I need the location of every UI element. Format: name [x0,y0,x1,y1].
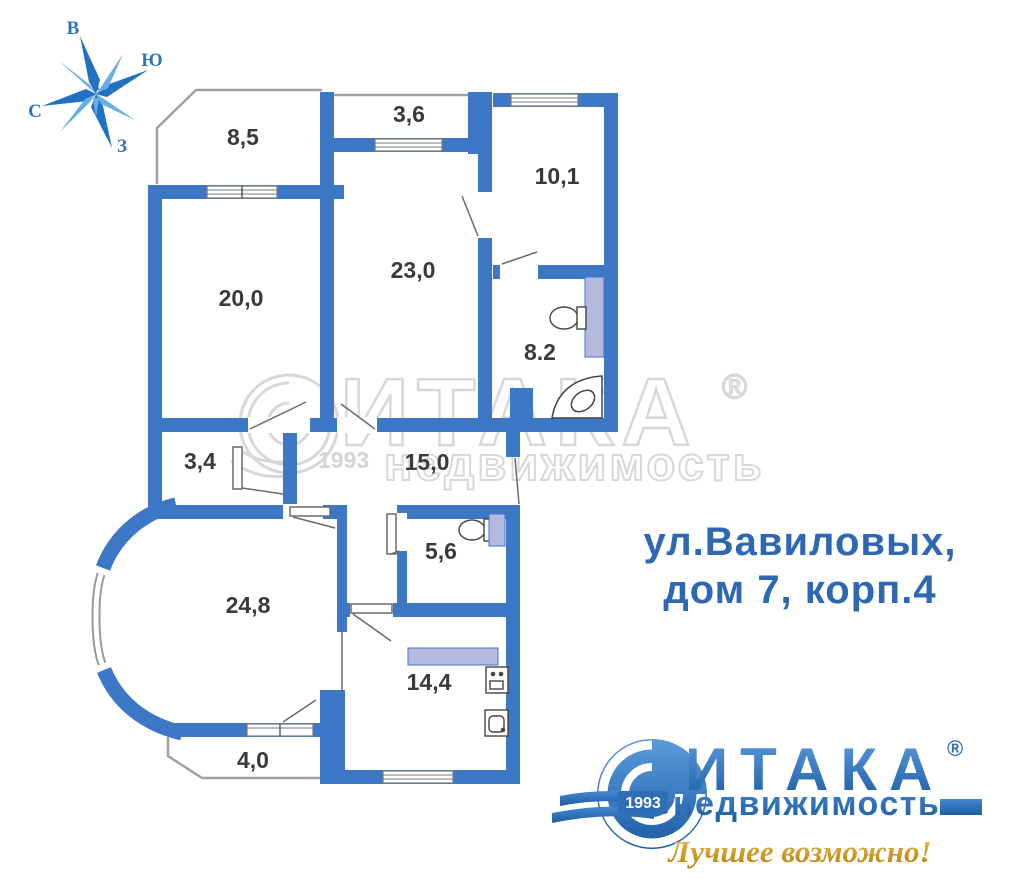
logo-tagline: Лучшее возможно! [666,834,931,869]
logo-subtitle: недвижимость [673,785,940,823]
logo-bar [940,799,982,815]
logo-year: 1993 [625,795,661,812]
floor-plan-page: ИТАКА ® 1993 недвижимость [0,0,1024,879]
company-logo: ИТАКА ® 1993 недвижимость Лучшее возможн… [0,0,1024,879]
logo-reg: ® [947,736,963,761]
